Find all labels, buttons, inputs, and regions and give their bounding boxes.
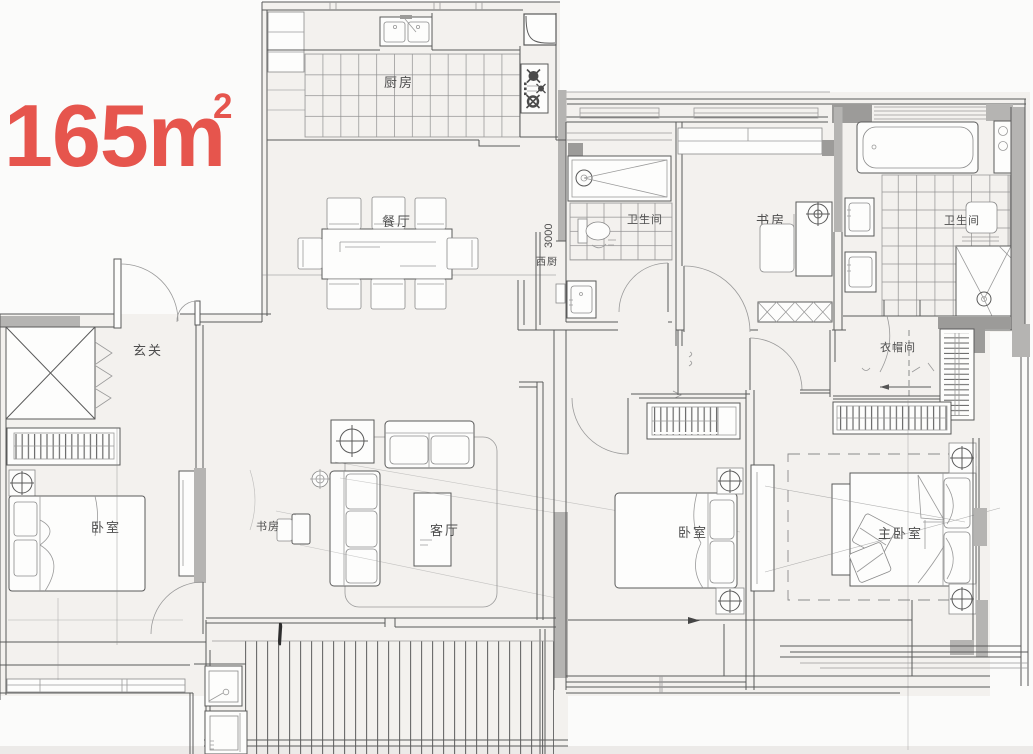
svg-text:书房: 书房 (256, 520, 280, 533)
svg-text:卧室: 卧室 (678, 525, 708, 540)
svg-text:卧室: 卧室 (91, 520, 121, 535)
svg-text:西厨: 西厨 (536, 256, 558, 268)
svg-text:卫生间: 卫生间 (627, 212, 663, 226)
svg-text:客厅: 客厅 (430, 523, 460, 538)
svg-text:主卧室: 主卧室 (878, 526, 923, 541)
svg-text:餐厅: 餐厅 (382, 214, 412, 229)
svg-text:卫生间: 卫生间 (944, 213, 980, 227)
svg-text:2: 2 (213, 87, 232, 126)
svg-text:165m: 165m (4, 86, 225, 185)
svg-text:3000: 3000 (543, 224, 555, 248)
svg-text:玄关: 玄关 (133, 343, 163, 358)
svg-text:厨房: 厨房 (384, 75, 414, 90)
svg-text:衣帽间: 衣帽间 (880, 340, 916, 354)
